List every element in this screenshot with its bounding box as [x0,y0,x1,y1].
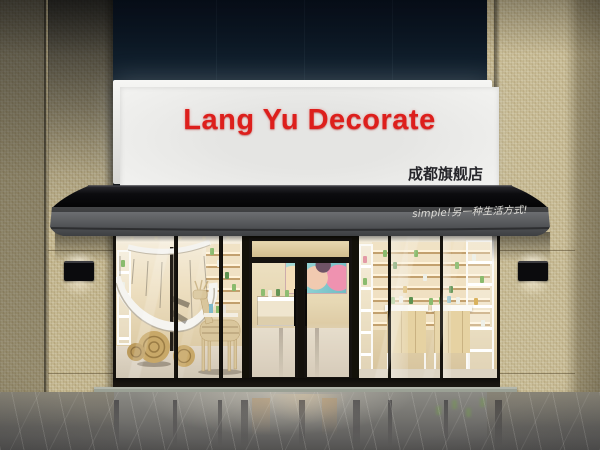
window-mullion [219,234,223,380]
right-display-window [359,234,497,380]
left-back-wall-shade [0,0,46,396]
door-right-leaf [304,260,353,380]
marble-veining [0,392,600,450]
sign-board: Lang Yu Decorate 成都旗舰店 [113,80,492,184]
lamp-downlight [59,281,99,302]
storefront-scene: Lang Yu Decorate 成都旗舰店 [0,0,600,450]
entrance-door-unit [242,234,359,382]
door-left-leaf [249,260,298,380]
door-handle [294,289,296,326]
panel-seam [304,0,305,84]
lamp-downlight [513,281,553,302]
wall-sconce-icon [518,261,548,281]
awning: simple!另一种生活方式! [50,178,550,242]
storefront-glazing [113,230,500,392]
glass-reflection [116,234,242,380]
wall-sconce-icon [64,261,94,281]
window-mullion [174,234,178,380]
panel-seam [392,0,393,84]
glass-reflection [359,234,497,380]
marble-floor [0,392,600,450]
right-corner-shadow [565,0,600,396]
upper-facade-panel [108,0,492,84]
panel-seam [216,0,217,84]
left-display-window [116,234,242,380]
sign-title: Lang Yu Decorate [120,104,499,137]
tile-grout-line [497,373,575,374]
sign-lightbox-face: Lang Yu Decorate 成都旗舰店 [120,87,499,191]
door-handle [305,289,307,326]
